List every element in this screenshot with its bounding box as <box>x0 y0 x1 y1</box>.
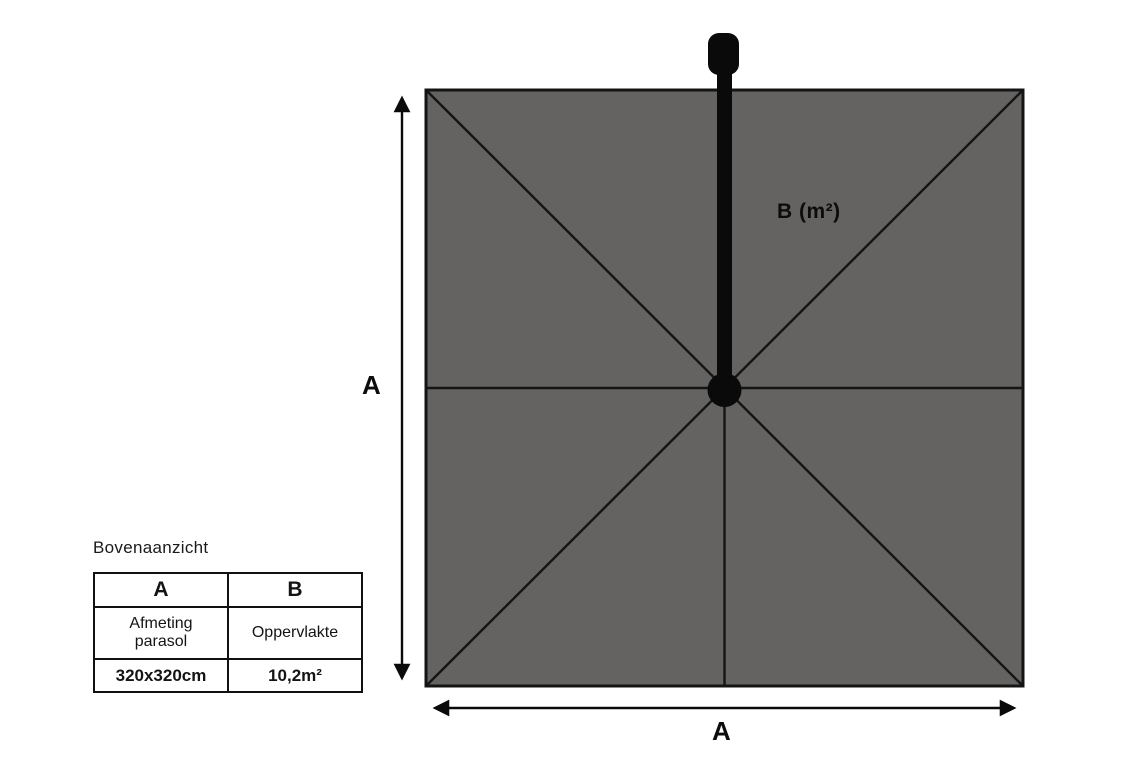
desc-cell-a-text: Afmeting parasol <box>111 615 211 652</box>
table-title: Bovenaanzicht <box>93 538 363 558</box>
spec-table-block: Bovenaanzicht A B Afmeting parasol Opper… <box>93 538 363 693</box>
pole-knob <box>708 33 739 75</box>
dimension-label-a-left: A <box>362 370 381 401</box>
table-header-row: A B <box>94 573 362 607</box>
table-desc-row: Afmeting parasol Oppervlakte <box>94 607 362 659</box>
dimension-label-a-bottom: A <box>712 716 731 747</box>
desc-cell-b: Oppervlakte <box>228 607 362 659</box>
spec-table: A B Afmeting parasol Oppervlakte 320x320… <box>93 572 363 693</box>
value-cell-b: 10,2m² <box>228 659 362 692</box>
area-label-b: B (m²) <box>777 200 841 224</box>
header-cell-b: B <box>228 573 362 607</box>
table-value-row: 320x320cm 10,2m² <box>94 659 362 692</box>
pole-hub <box>708 373 742 407</box>
pole-shaft <box>717 55 732 390</box>
desc-cell-a: Afmeting parasol <box>94 607 228 659</box>
desc-cell-b-text: Oppervlakte <box>252 624 338 641</box>
header-cell-a: A <box>94 573 228 607</box>
value-cell-a: 320x320cm <box>94 659 228 692</box>
parasol-topview-diagram: A A B (m²) Bovenaanzicht A B Afmeting pa… <box>0 0 1142 759</box>
